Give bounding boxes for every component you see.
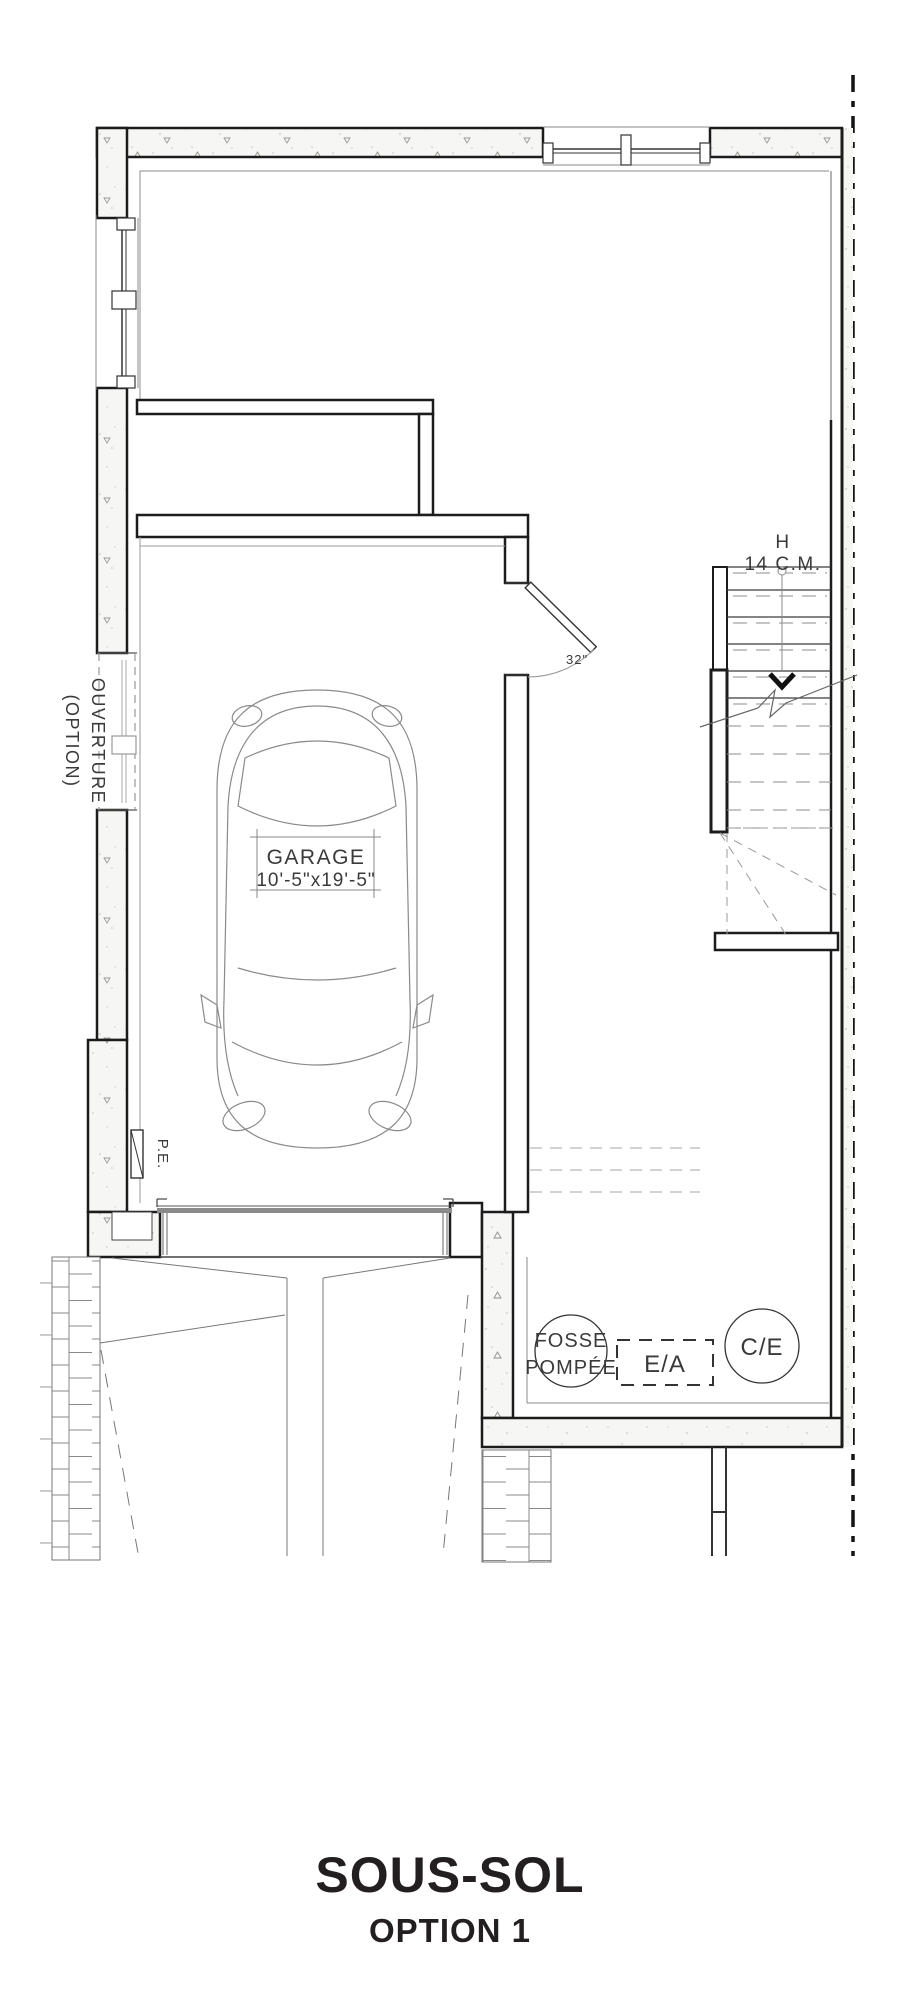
ea-label: E/A (644, 1351, 686, 1378)
stair-treads-hidden (727, 726, 833, 828)
corner-block-notch (112, 1212, 152, 1240)
window-jamb-top (117, 218, 135, 230)
garage-right-wall-lower (505, 675, 528, 1212)
car-body (217, 690, 417, 1148)
garage-hall-door: 32" (505, 582, 596, 677)
garage-door (157, 1199, 453, 1257)
bottom-wall (482, 1418, 842, 1447)
right-wall (831, 128, 842, 1447)
exterior-walls (88, 128, 842, 1447)
title-main: SOUS-SOL (315, 1847, 584, 1903)
ce-label: C/E (740, 1334, 783, 1361)
stair-stringer-upper (713, 567, 727, 670)
left-wall-mid (97, 388, 127, 653)
top-window (543, 127, 710, 165)
stairs-risers-label: 14 C.M. (744, 554, 821, 575)
garage-top-wall (137, 515, 528, 537)
mech-room-left-wall (482, 1212, 513, 1418)
door-leaf (525, 582, 596, 652)
floor-plan-sheet: OUVERTURE (OPTION) 32" (0, 0, 900, 2000)
fosse-label-line1: FOSSE (535, 1330, 608, 1352)
stair-landing-wall (715, 933, 838, 950)
car (201, 690, 433, 1148)
ouverture-label-line2: (OPTION) (62, 695, 82, 788)
electrical-panel: P.E. (131, 1130, 171, 1178)
paver-strip-left (52, 1257, 100, 1560)
party-line-dashed (843, 75, 853, 1556)
garage-name-label: GARAGE (267, 846, 366, 869)
paver-strip-bottom (482, 1450, 551, 1562)
window-mullion (621, 135, 631, 165)
left-wall-low (97, 810, 127, 1040)
garage-right-wall-upper (505, 537, 528, 583)
fence-stub (712, 1447, 726, 1556)
opening-mullion (112, 736, 136, 754)
upper-room-wall-return (419, 414, 433, 515)
stairs: H 14 C.M. (700, 532, 857, 938)
window-jamb-left (543, 143, 553, 163)
overhead-dashed-lines (530, 1148, 700, 1192)
sheet-title: SOUS-SOL OPTION 1 (315, 1847, 584, 1949)
floor-plan-drawing: OUVERTURE (OPTION) 32" (0, 0, 900, 2000)
left-wall-corner (97, 128, 127, 218)
stairs-up-label: H (775, 532, 790, 553)
left-wall-lower-wide (88, 1040, 127, 1212)
mechanical-symbols: FOSSE POMPÉE E/A C/E (525, 1309, 799, 1387)
fosse-label-line2: POMPÉE (525, 1356, 617, 1379)
stair-direction-arrow (770, 674, 794, 687)
driveway (100, 1258, 468, 1556)
window-jamb-bottom (117, 376, 135, 388)
ouverture-label-line1: OUVERTURE (88, 678, 108, 804)
garage-door-right-jamb (450, 1203, 482, 1257)
stair-stringer-lower (711, 670, 727, 832)
upper-room-wall (137, 400, 433, 414)
garage-door-header (157, 1208, 452, 1213)
garage-dims-label: 10'-5"x19'-5" (256, 870, 375, 891)
top-wall-left (97, 128, 543, 157)
pe-label: P.E. (154, 1139, 171, 1169)
title-sub: OPTION 1 (369, 1912, 531, 1949)
door-width-label: 32" (566, 652, 588, 667)
top-wall-right (710, 128, 842, 157)
paver-strips (40, 1257, 551, 1562)
stair-hidden-fan (720, 828, 836, 938)
window-mullion-left (112, 291, 136, 309)
stair-treads-solid (727, 567, 831, 698)
window-jamb-right (700, 143, 710, 163)
garage-label: GARAGE 10'-5"x19'-5" (250, 829, 381, 898)
left-window (112, 218, 138, 388)
party-wall-stipple (843, 128, 853, 1447)
